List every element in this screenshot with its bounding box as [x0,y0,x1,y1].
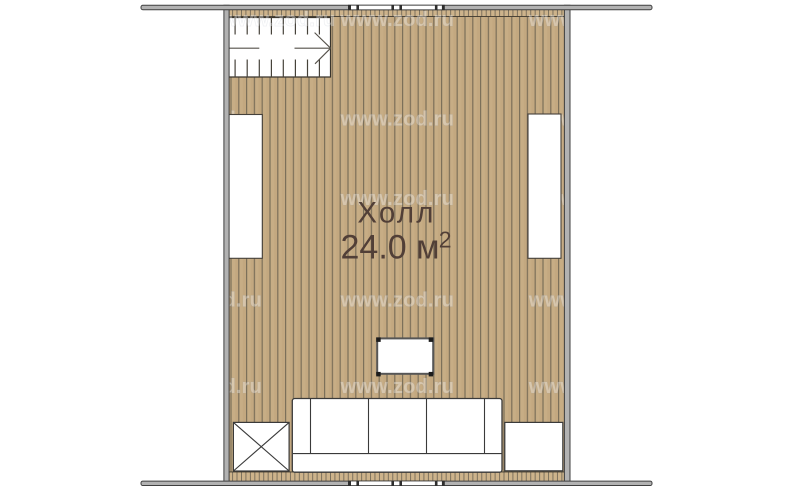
svg-text:Холл: Холл [357,197,435,230]
svg-text:www.zod.ru: www.zod.ru [528,289,642,311]
svg-text:www.zod.ru: www.zod.ru [148,289,262,311]
svg-text:24.0 м: 24.0 м [341,229,440,267]
svg-text:www.zod.ru: www.zod.ru [221,9,335,31]
svg-text:www.zod.ru: www.zod.ru [340,376,454,398]
svg-text:2: 2 [439,226,452,252]
svg-text:www.zod.ru: www.zod.ru [148,376,262,398]
svg-text:www.zod.ru: www.zod.ru [340,9,454,31]
svg-text:www.zod.ru: www.zod.ru [340,289,454,311]
svg-text:www.zod.ru: www.zod.ru [340,108,454,130]
svg-text:www.zod.ru: www.zod.ru [528,376,642,398]
svg-text:www.zod.ru: www.zod.ru [528,9,642,31]
